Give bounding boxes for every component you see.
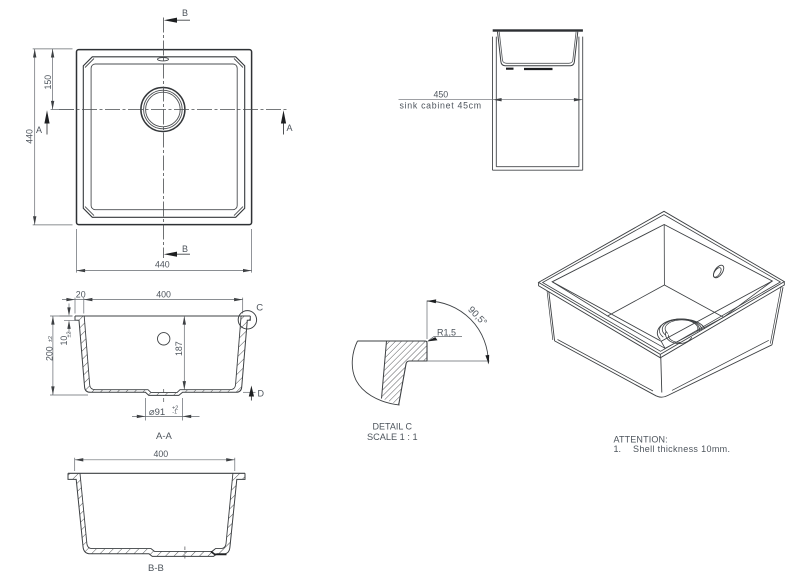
svg-text:C: C xyxy=(256,303,263,314)
svg-text:400: 400 xyxy=(156,289,171,299)
svg-text:440: 440 xyxy=(25,129,35,144)
svg-text:B: B xyxy=(182,244,188,254)
svg-text:400: 400 xyxy=(154,449,169,459)
svg-text:20: 20 xyxy=(76,290,86,300)
svg-text:SCALE 1 : 1: SCALE 1 : 1 xyxy=(367,432,418,442)
svg-text:⌀91: ⌀91 xyxy=(149,407,165,418)
svg-text:450: 450 xyxy=(434,90,449,100)
svg-text:D: D xyxy=(258,389,265,399)
svg-text:DETAIL C: DETAIL C xyxy=(373,422,413,432)
svg-text:A-A: A-A xyxy=(156,431,173,442)
svg-text:440: 440 xyxy=(155,260,170,270)
svg-text:A: A xyxy=(287,123,293,133)
svg-text:A: A xyxy=(36,125,42,135)
svg-text:B: B xyxy=(182,8,188,18)
svg-text:-1: -1 xyxy=(172,410,177,416)
svg-text:187: 187 xyxy=(174,341,184,356)
svg-text:1.: 1. xyxy=(614,444,622,454)
svg-text:R1,5: R1,5 xyxy=(437,327,456,337)
svg-text:B-B: B-B xyxy=(148,563,164,574)
svg-text:±2: ±2 xyxy=(67,331,73,337)
svg-text:±2: ±2 xyxy=(48,336,54,342)
svg-text:Shell thickness 10mm.: Shell thickness 10mm. xyxy=(633,444,730,454)
svg-text:200: 200 xyxy=(45,346,55,361)
svg-text:sink cabinet 45cm: sink cabinet 45cm xyxy=(400,101,482,111)
svg-text:90,5°: 90,5° xyxy=(465,304,489,328)
svg-text:150: 150 xyxy=(43,75,53,90)
